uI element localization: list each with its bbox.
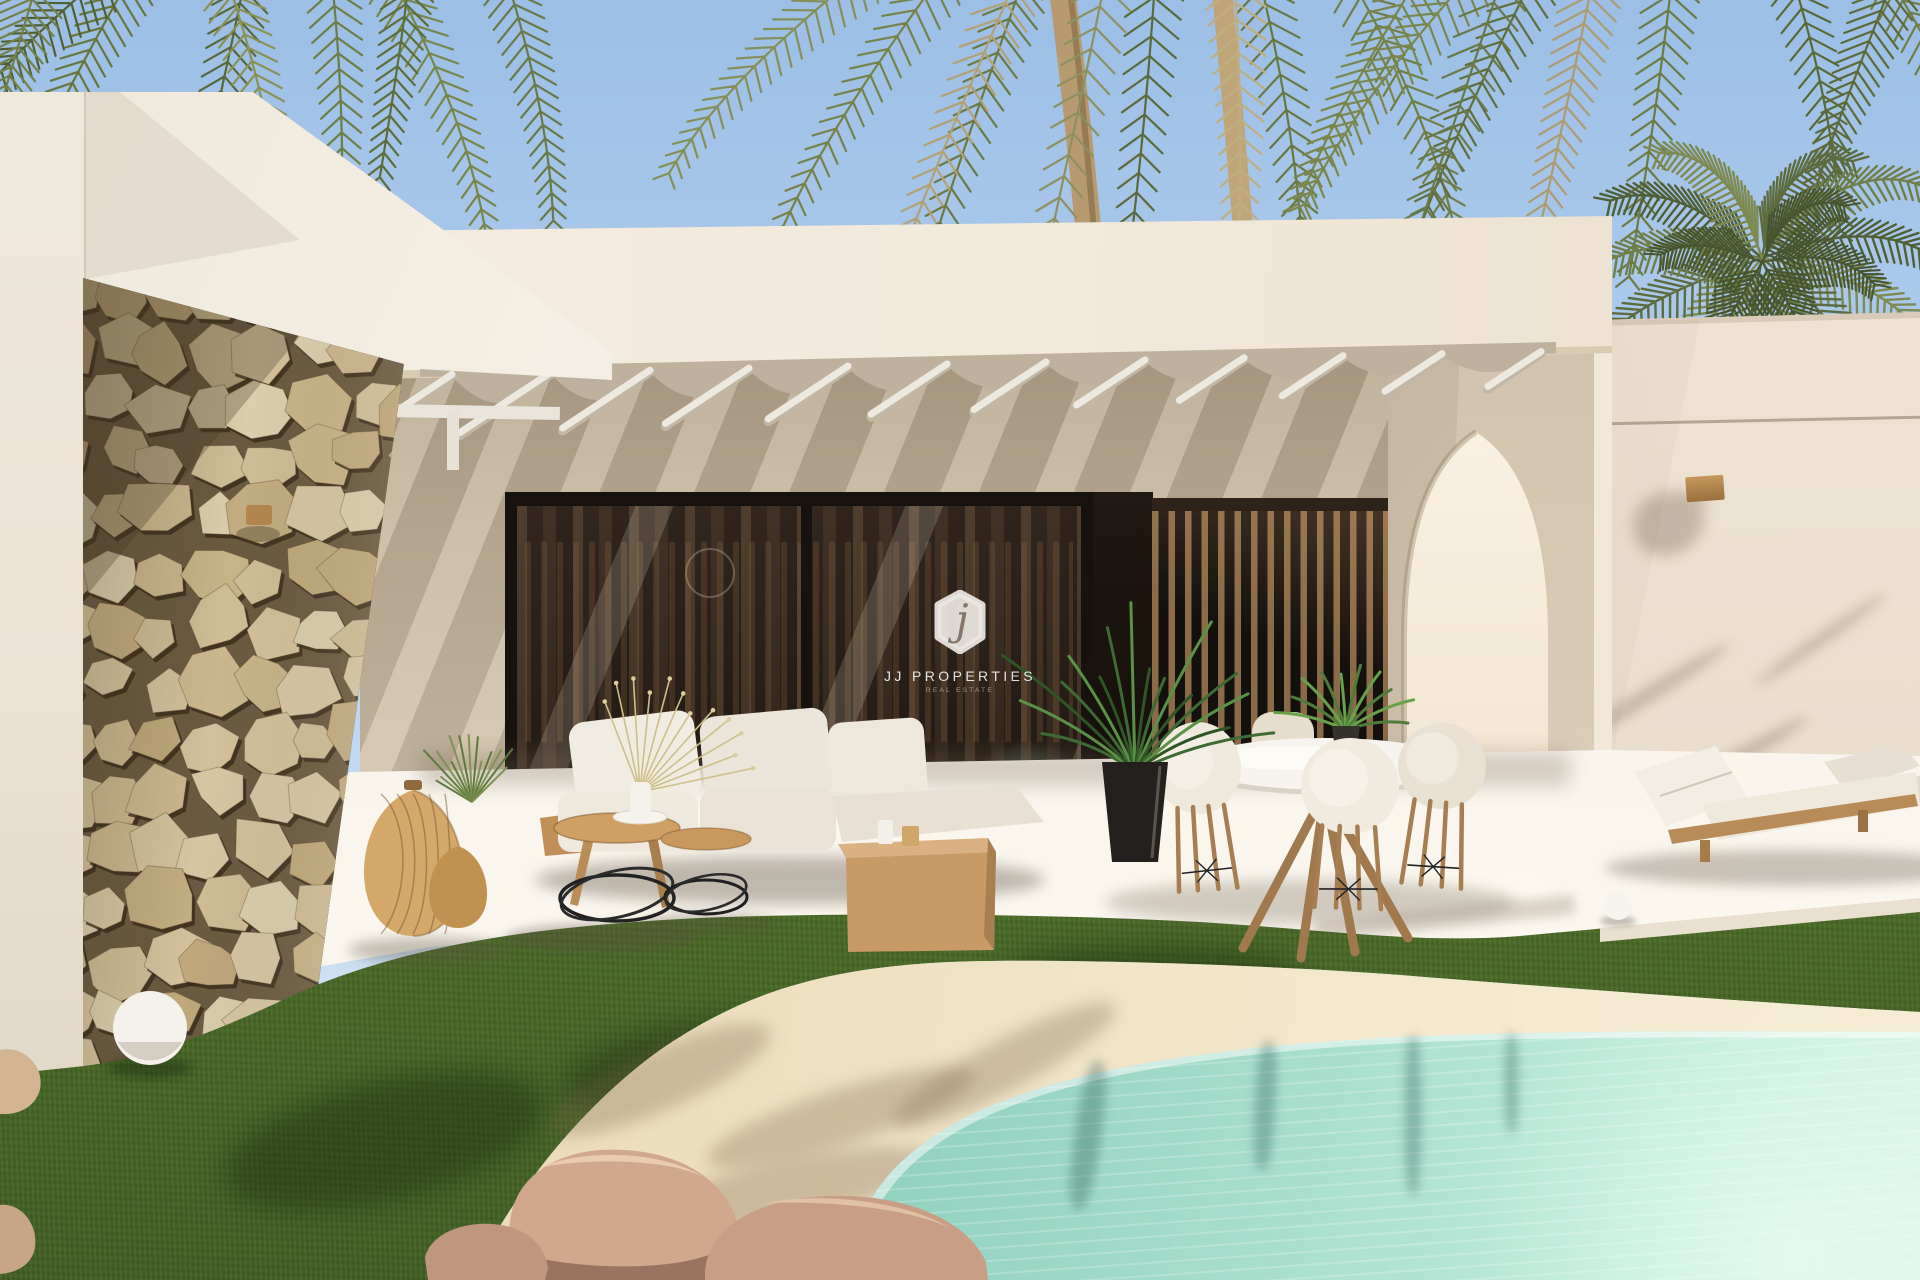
logo-name: JJ PROPERTIES bbox=[820, 668, 1100, 684]
villa-exterior-render: j JJ PROPERTIES REAL ESTATE bbox=[0, 0, 1920, 1280]
logo-tagline: REAL ESTATE bbox=[820, 687, 1100, 694]
watermark-logo: j JJ PROPERTIES REAL ESTATE bbox=[820, 590, 1100, 694]
logo-hexagon: j bbox=[929, 590, 991, 654]
